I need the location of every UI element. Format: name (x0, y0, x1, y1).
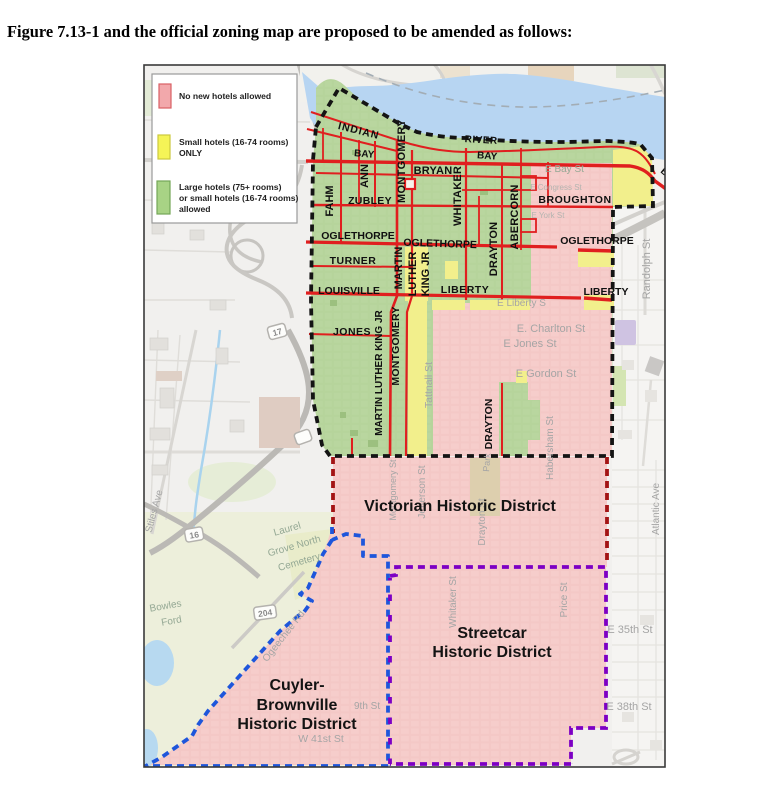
svg-text:Large hotels (75+ rooms): Large hotels (75+ rooms) (179, 182, 282, 192)
svg-text:RIVER: RIVER (464, 134, 498, 147)
svg-text:Cuyler-: Cuyler- (269, 677, 324, 694)
svg-text:Small hotels (16-74 rooms): Small hotels (16-74 rooms) (179, 137, 289, 147)
svg-text:BAY: BAY (477, 150, 498, 162)
svg-text:No new hotels allowed: No new hotels allowed (179, 91, 271, 101)
svg-text:E Gordon St: E Gordon St (516, 368, 577, 380)
svg-text:ANN: ANN (359, 164, 371, 188)
svg-text:MARTIN: MARTIN (393, 247, 405, 290)
svg-text:OGLETHORPE: OGLETHORPE (560, 235, 634, 247)
svg-text:16: 16 (189, 529, 200, 541)
svg-text:BAY: BAY (354, 148, 375, 161)
svg-text:Randolph St: Randolph St (641, 239, 653, 300)
svg-text:WHITAKER: WHITAKER (452, 166, 464, 226)
svg-text:Atlantic Ave: Atlantic Ave (651, 483, 662, 536)
svg-text:OGLETHORPE: OGLETHORPE (321, 230, 395, 242)
svg-text:LIBERTY: LIBERTY (584, 286, 629, 298)
svg-text:LIBERTY: LIBERTY (441, 284, 489, 296)
svg-text:Habersham St: Habersham St (545, 416, 556, 480)
svg-text:E. Charlton St: E. Charlton St (517, 323, 585, 335)
svg-text:E 38th St: E 38th St (606, 701, 651, 713)
svg-text:allowed: allowed (179, 204, 211, 214)
svg-text:9th St: 9th St (354, 701, 380, 712)
svg-text:W 41st St: W 41st St (298, 733, 344, 745)
svg-text:DRAYTON: DRAYTON (483, 399, 495, 450)
svg-text:Whitaker St: Whitaker St (448, 576, 459, 628)
svg-text:or small hotels (16-74 rooms): or small hotels (16-74 rooms) (179, 193, 299, 203)
svg-text:DRAYTON: DRAYTON (488, 222, 500, 277)
svg-text:ZUBLEY: ZUBLEY (348, 195, 392, 207)
svg-text:Park: Park (481, 452, 493, 472)
svg-text:LOUISVILLE: LOUISVILLE (318, 285, 380, 297)
svg-text:OGLETHORPE: OGLETHORPE (403, 237, 477, 252)
svg-text:Brownville: Brownville (257, 697, 338, 714)
svg-text:MARTIN LUTHER KING JR: MARTIN LUTHER KING JR (374, 309, 385, 435)
svg-text:ABERCORN: ABERCORN (509, 184, 521, 249)
svg-text:Tattnall St: Tattnall St (423, 362, 435, 408)
svg-text:E Jones St: E Jones St (503, 338, 556, 350)
svg-text:E Congress St: E Congress St (530, 183, 582, 192)
svg-text:E Liberty S: E Liberty S (497, 298, 546, 309)
svg-text:ONLY: ONLY (179, 148, 202, 158)
svg-text:KING JR: KING JR (420, 252, 432, 297)
svg-text:Historic District: Historic District (237, 716, 357, 733)
svg-text:E Bay St: E Bay St (545, 164, 584, 175)
svg-text:Victorian Historic District: Victorian Historic District (364, 498, 556, 515)
svg-text:204: 204 (257, 607, 273, 619)
svg-text:JONES: JONES (333, 326, 371, 338)
svg-text:Price St: Price St (559, 582, 570, 617)
svg-text:TURNER: TURNER (330, 255, 377, 267)
svg-text:BRYAN: BRYAN (414, 165, 453, 177)
svg-text:MONTGOMERY: MONTGOMERY (396, 119, 408, 203)
svg-text:BROUGHTON: BROUGHTON (538, 194, 611, 206)
svg-text:LUTHER: LUTHER (407, 252, 419, 297)
svg-text:Streetcar: Streetcar (457, 625, 526, 642)
svg-text:E York St: E York St (532, 211, 566, 220)
svg-text:MONTGOMERY: MONTGOMERY (390, 306, 402, 385)
svg-text:E 35th St: E 35th St (607, 624, 652, 636)
svg-text:FAHM: FAHM (324, 185, 336, 216)
svg-text:Historic District: Historic District (432, 644, 552, 661)
